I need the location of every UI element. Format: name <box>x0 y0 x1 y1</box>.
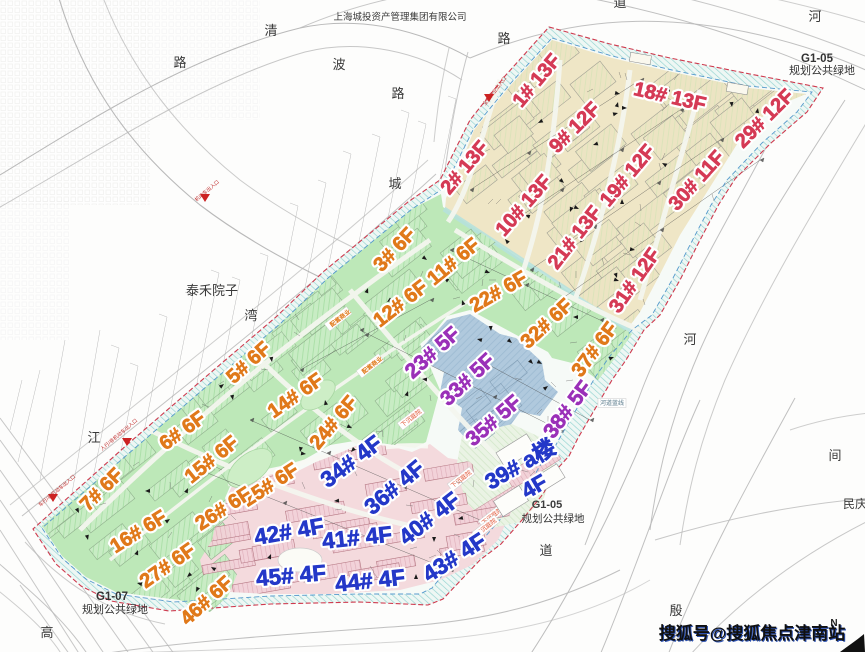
svg-text:规划公共绿地: 规划公共绿地 <box>789 63 855 77</box>
svg-text:波: 波 <box>332 57 345 72</box>
svg-text:清: 清 <box>264 23 277 38</box>
svg-text:城: 城 <box>388 176 401 191</box>
svg-text:民庆: 民庆 <box>843 497 865 511</box>
svg-text:河道蓝线: 河道蓝线 <box>600 399 624 407</box>
svg-text:上海城投资产管理集团有限公司: 上海城投资产管理集团有限公司 <box>333 11 466 23</box>
svg-text:G1-05: G1-05 <box>801 53 834 65</box>
svg-text:河: 河 <box>683 332 696 347</box>
svg-text:殷: 殷 <box>669 603 682 618</box>
svg-text:高: 高 <box>40 625 53 640</box>
svg-text:G1-05: G1-05 <box>532 499 563 511</box>
svg-text:江: 江 <box>87 430 100 445</box>
svg-text:路: 路 <box>497 31 510 46</box>
svg-text:河: 河 <box>808 9 821 24</box>
svg-text:间: 间 <box>828 448 841 463</box>
svg-text:道: 道 <box>613 0 626 10</box>
svg-text:N: N <box>830 618 837 629</box>
svg-text:道: 道 <box>539 543 552 558</box>
svg-text:路: 路 <box>391 86 404 101</box>
svg-text:规划公共绿地: 规划公共绿地 <box>522 512 585 525</box>
svg-text:路: 路 <box>173 55 186 70</box>
svg-text:G1-07: G1-07 <box>96 591 128 603</box>
svg-text:规划公共绿地: 规划公共绿地 <box>82 602 148 616</box>
svg-text:泰禾院子: 泰禾院子 <box>186 283 238 298</box>
svg-text:搜狐号@搜狐焦点津南站: 搜狐号@搜狐焦点津南站 <box>659 623 846 643</box>
svg-text:湾: 湾 <box>244 308 257 323</box>
